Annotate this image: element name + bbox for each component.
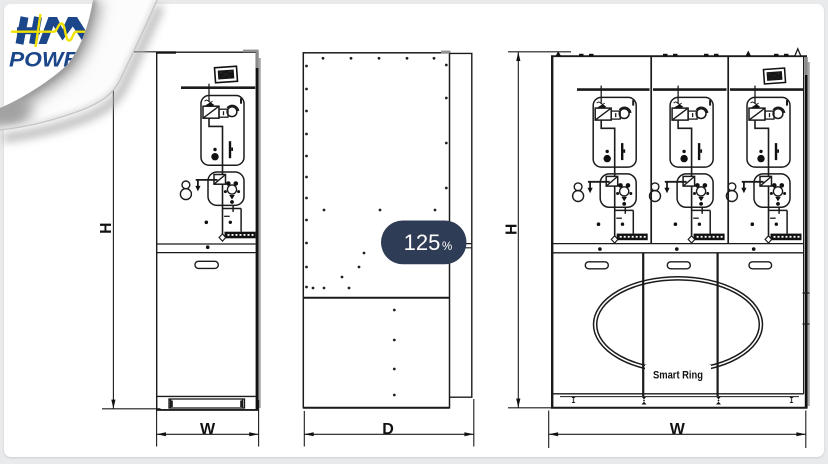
svg-text:H: H xyxy=(98,223,115,234)
svg-text:D: D xyxy=(382,421,394,438)
svg-text:H: H xyxy=(504,224,521,235)
svg-text:Smart Ring: Smart Ring xyxy=(653,370,703,382)
svg-text:%: % xyxy=(442,241,452,253)
svg-text:W: W xyxy=(200,421,216,438)
svg-text:W: W xyxy=(670,421,686,438)
svg-text:125: 125 xyxy=(404,230,441,255)
